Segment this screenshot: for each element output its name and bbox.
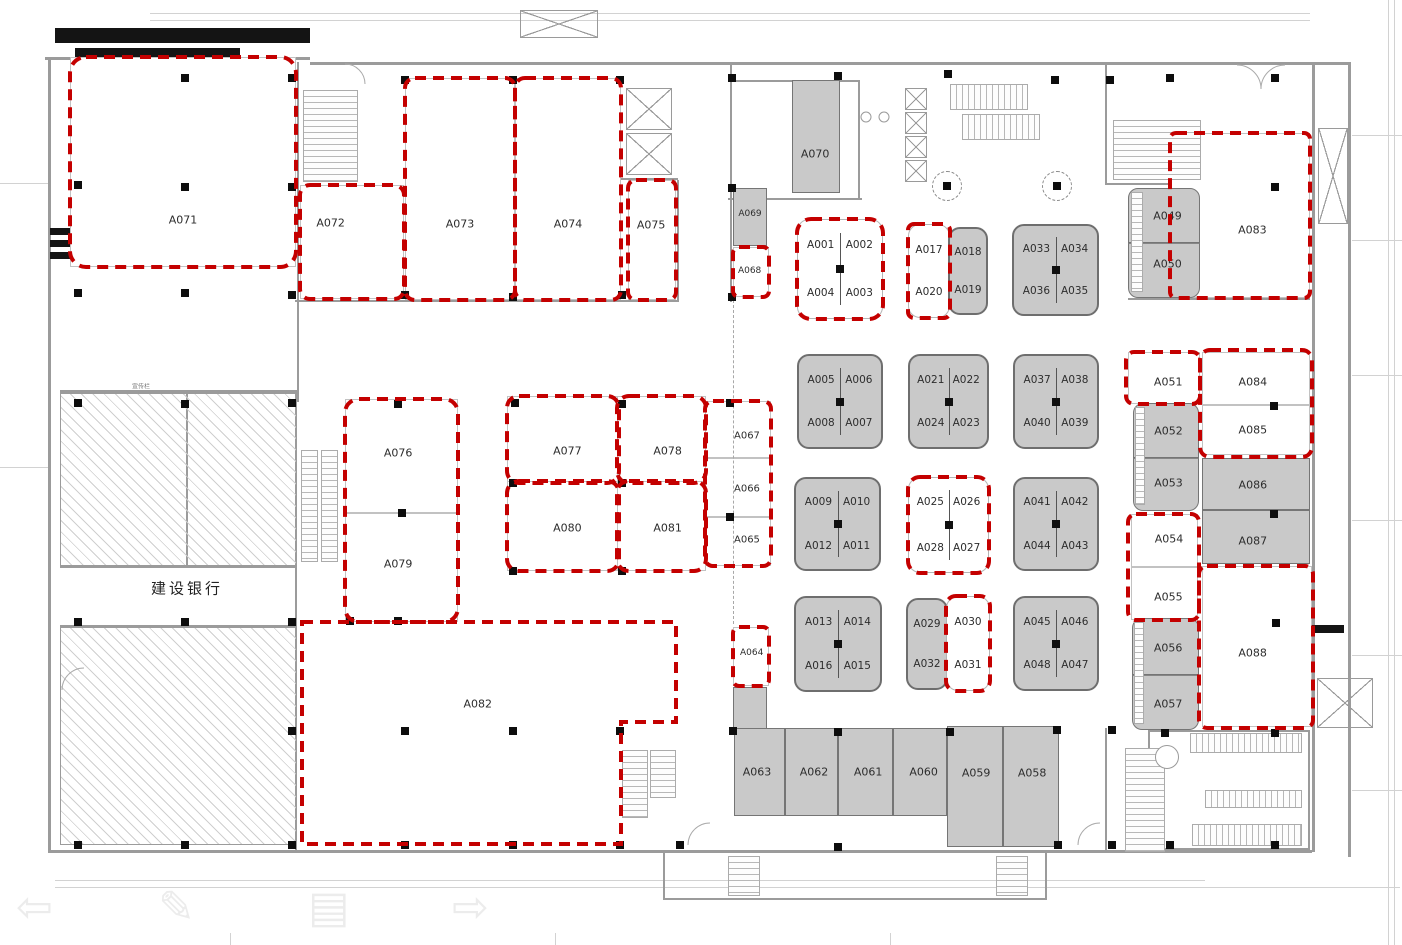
unit-label: A014 [844,616,871,628]
elevator [626,133,672,175]
unit-label: A072 [316,216,345,229]
stairs [1192,824,1302,846]
guide-line [1352,520,1402,521]
unit-A051: A051 [1128,352,1200,404]
wall [48,850,1312,853]
unit-label: A074 [554,218,583,231]
stairs [1131,192,1143,292]
kiosk-unit-K-A005: A005A006A008A007 [797,354,883,449]
column [728,74,736,82]
wall [295,300,677,302]
unit-label: A003 [846,287,873,299]
guide-line [0,183,48,184]
stairs [1135,407,1145,505]
unit-A077: A077 [507,396,619,483]
column [1161,729,1169,737]
unit-label: A052 [1154,424,1183,437]
column [401,291,409,299]
wall [858,80,860,200]
unit-A064: A064 [733,627,769,686]
column [74,841,82,849]
kiosk-unit-K-A018: A018A019 [948,227,988,315]
column [401,76,409,84]
column [836,398,844,406]
unit-label: A076 [384,446,413,459]
column [288,183,296,191]
column [1053,726,1061,734]
unit-label: A051 [1154,375,1183,388]
wall [1348,62,1351,857]
unit-label: A082 [464,698,493,711]
door-arc [345,64,365,84]
column [181,841,189,849]
wall [1105,728,1107,850]
elevator [520,10,598,38]
unit-A058: A058 [1003,726,1059,847]
kiosk-unit-K-A017: A017A020 [908,224,950,318]
unit-label: A075 [637,218,666,231]
stairs [650,750,676,798]
unit-label: A049 [1153,209,1182,222]
unit-A055: A055 [1131,567,1198,620]
unit-label: A029 [913,618,940,630]
column [729,727,737,735]
kiosk-unit-K-A030: A030A031 [946,596,990,691]
column [618,400,626,408]
column [618,479,626,487]
unit-label: A047 [1061,659,1088,671]
column [181,400,189,408]
stairs [301,450,318,562]
column [288,727,296,735]
column [181,289,189,297]
wall [663,898,1047,900]
unit-label: A048 [1024,659,1051,671]
elevator [905,160,927,182]
boundary-dashed-line [733,300,735,624]
column [944,70,952,78]
column [398,509,406,517]
guide-line [1352,375,1402,376]
guide-line [1388,0,1389,945]
circle-marker [861,112,872,123]
unit-A081: A081 [617,481,706,571]
column [1270,510,1278,518]
unit-label: A069 [738,209,761,219]
unit-label: A022 [953,374,980,386]
unit-A063: A063 [734,728,785,816]
solid-bar [1310,625,1344,633]
column [1054,841,1062,849]
unit-label: A053 [1154,477,1183,490]
unit-label: A084 [1239,376,1268,389]
list-icon[interactable]: ▤ [308,886,350,930]
unit-label: A024 [917,417,944,429]
column [181,183,189,191]
kiosk-unit-K-A009: A009A010A012A011 [794,477,881,571]
column [401,727,409,735]
unit-label: A015 [844,660,871,672]
forward-arrow-icon[interactable]: ⇨ [452,886,489,930]
back-arrow-icon[interactable]: ⇦ [16,886,53,930]
column [511,399,519,407]
column [946,728,954,736]
edit-icon[interactable]: ✎ [158,886,195,930]
column [834,72,842,80]
unit-A062: A062 [785,728,838,816]
unit-label: A066 [734,483,760,494]
stairs [1134,622,1144,724]
wall [60,566,297,568]
wall [297,62,299,402]
wall [1148,730,1310,732]
wall [1045,852,1047,898]
unit-label: A034 [1061,243,1088,255]
column [834,728,842,736]
column [394,617,402,625]
column [618,567,626,575]
guide-line [1352,135,1402,136]
unit-label: A079 [384,558,413,571]
stairs [962,114,1040,140]
column [1052,520,1060,528]
column [509,727,517,735]
column [74,399,82,407]
unit-label: A042 [1061,496,1088,508]
kiosk-unit-K-A029: A029A032 [906,598,948,690]
unit-label: A013 [805,616,832,628]
unit-label: A073 [446,218,475,231]
column [509,293,517,301]
stairs [1113,120,1201,180]
unit-label: A081 [653,521,682,534]
circle-marker [879,112,890,123]
stairs [303,90,358,182]
column [616,76,624,84]
column [288,618,296,626]
elevator [905,88,927,110]
unit-label: A007 [845,417,872,429]
unit-label: A036 [1023,285,1050,297]
column [401,841,409,849]
unit-label: A044 [1024,540,1051,552]
column [726,513,734,521]
column [728,293,736,301]
column [1052,266,1060,274]
unit-A086: A086 [1202,458,1310,510]
stairs [950,84,1028,110]
kiosk-unit-K-A001: A001A002A004A003 [797,219,883,319]
wall [310,62,1350,65]
guide-line [555,933,556,945]
unit-label: A025 [917,496,944,508]
wall [677,180,679,302]
elevator [1317,678,1373,728]
unit-label: A039 [1061,417,1088,429]
column [1271,729,1279,737]
bank-name-label: 建设银行 [151,578,223,599]
unit-A079: A079 [345,513,458,622]
column [181,74,189,82]
column [74,181,82,189]
column [1271,841,1279,849]
column [74,289,82,297]
unit-label: A064 [740,648,763,658]
column [616,841,624,849]
unit-A065: A065 [705,517,771,566]
kiosk-unit-K-A021: A021A022A024A023 [908,354,989,449]
unit-label: A011 [843,540,870,552]
wall [730,62,732,302]
unit-label: A023 [953,417,980,429]
column [1272,619,1280,627]
column [728,184,736,192]
door-arc [1237,65,1261,89]
unit-label: A002 [846,239,873,251]
guide-line [55,880,1205,881]
unit-label: A019 [954,284,981,296]
unit-A060: A060 [893,728,947,816]
column [1271,74,1279,82]
unit-A073: A073 [405,78,515,300]
stairs [321,450,338,562]
column [509,76,517,84]
unit-label: A005 [808,374,835,386]
unit-A068: A068 [733,247,769,297]
unit-label: A026 [953,496,980,508]
kiosk-unit-K-A045: A045A046A048A047 [1013,596,1099,691]
unit-label: A060 [909,766,938,779]
guide-line [890,933,891,945]
wall [48,57,51,852]
unit-label: A001 [807,239,834,251]
column [618,291,626,299]
stairs [728,856,760,896]
guide-line [230,933,231,945]
column [1052,398,1060,406]
column [394,400,402,408]
circle-marker [1155,745,1179,769]
unit-label: A037 [1024,374,1051,386]
column [288,841,296,849]
unit-A074: A074 [515,78,621,300]
bank-hatched-area [60,393,297,566]
unit-label: A006 [845,374,872,386]
column [1051,76,1059,84]
unit-label: A065 [734,534,760,545]
unit-label: A017 [915,244,942,256]
unit-label: A045 [1024,616,1051,628]
wall [1308,730,1310,848]
unit-label: A009 [805,496,832,508]
unit-A054: A054 [1131,514,1198,567]
door-arc [688,823,710,845]
column [1166,841,1174,849]
unit-label: A021 [917,374,944,386]
unit-label: A059 [962,767,991,780]
unit-label: A035 [1061,285,1088,297]
column [509,841,517,849]
column [1270,402,1278,410]
guide-line [1352,655,1402,656]
unit-A087: A087 [1202,510,1310,564]
column [181,618,189,626]
unit-label: A061 [854,766,883,779]
column [834,640,842,648]
elevator [905,112,927,134]
stairs [622,750,648,818]
unit-label: A080 [553,521,582,534]
stairs [996,856,1028,896]
unit-A078: A078 [617,396,706,483]
unit-label: A056 [1154,641,1183,654]
column [346,617,354,625]
unit-label: A027 [953,542,980,554]
unit-label: A031 [954,659,981,671]
column [1108,726,1116,734]
column [834,520,842,528]
unit-label: A040 [1024,417,1051,429]
unit-label: A085 [1239,424,1268,437]
guide-line [1352,240,1402,241]
door-arc [1078,823,1100,845]
unit-label: A088 [1238,646,1267,659]
column [1108,841,1116,849]
stairs [1190,733,1302,753]
unit-label: A004 [807,287,834,299]
unit-label: A046 [1061,616,1088,628]
bank-hatched-area [60,627,297,845]
unit-label: A063 [743,766,772,779]
unit-A085: A085 [1202,405,1310,455]
unit-A069: A069 [733,188,767,246]
column [1271,183,1279,191]
kiosk-unit-K-A041: A041A042A044A043 [1013,477,1099,571]
unit-label: A067 [734,431,760,442]
unit-A070: A070 [792,80,840,193]
unit-A071: A071 [70,57,296,267]
unit-A059: A059 [947,726,1003,847]
unit-label: A057 [1154,697,1183,710]
unit-label: A077 [553,445,582,458]
column [74,618,82,626]
guide-line [150,13,1310,14]
unit-A080: A080 [507,481,619,571]
column [834,843,842,851]
column [1166,74,1174,82]
unit-label: A050 [1153,258,1182,271]
unit-label: A055 [1154,590,1183,603]
column [509,479,517,487]
unit-A066: A066 [705,458,771,517]
guide-line [1394,0,1395,945]
unit-label: A071 [169,214,198,227]
guide-line [150,20,1310,21]
stairs [1205,790,1302,808]
unit-A075: A075 [628,180,676,300]
column [1053,182,1061,190]
column [726,399,734,407]
unit-label: A016 [805,660,832,672]
wall [1128,298,1310,300]
unit-label: A033 [1023,243,1050,255]
unit-label: A038 [1061,374,1088,386]
column [945,521,953,529]
column [509,567,517,575]
kiosk-unit-K-A013: A013A014A016A015 [794,596,882,692]
solid-bar [55,28,310,43]
kiosk-unit-K-A037: A037A038A040A039 [1013,354,1099,449]
unit-label: A083 [1238,224,1267,237]
unit-A067: A067 [705,401,771,458]
guide-line [0,467,48,468]
unit-label: A028 [917,542,944,554]
elevator [626,88,672,130]
column [1052,640,1060,648]
column [288,291,296,299]
unit-A072: A072 [300,185,404,299]
unit-label: A043 [1061,540,1088,552]
unit-label: A012 [805,540,832,552]
unit-label: A062 [800,766,829,779]
column [943,182,951,190]
unit-A084: A084 [1202,352,1310,405]
kiosk-unit-K-A033: A033A034A036A035 [1012,224,1099,316]
wall [1312,62,1315,852]
floor-plan: A071A072A073A074A075A068A069A070A083A049… [0,0,1402,945]
unit-A061: A061 [838,728,893,816]
unit-label: A008 [808,417,835,429]
unit-label: A068 [738,266,761,276]
unit-label: A086 [1239,479,1268,492]
column [288,399,296,407]
wall [663,852,665,900]
elevator [905,136,927,158]
column [945,398,953,406]
unit-label: A078 [653,445,682,458]
unit-A076: A076 [345,399,458,513]
elevator [1318,128,1348,224]
unit-label: A054 [1155,532,1184,545]
unit-label: A010 [843,496,870,508]
kiosk-unit-K-A025: A025A026A028A027 [908,477,989,573]
unit-label: A020 [915,286,942,298]
column [288,74,296,82]
unit-label: A070 [801,148,830,161]
unit-label: A058 [1018,767,1047,780]
column [836,265,844,273]
column [676,841,684,849]
unit-corridor-strip [733,687,767,729]
sign-board-label: 宣传栏 [132,382,150,391]
unit-label: A041 [1024,496,1051,508]
column [616,727,624,735]
guide-line [1352,790,1402,791]
unit-label: A018 [954,246,981,258]
column [1106,76,1114,84]
unit-label: A032 [913,658,940,670]
unit-label: A030 [954,616,981,628]
unit-A088: A088 [1202,566,1312,727]
unit-label: A087 [1239,534,1268,547]
